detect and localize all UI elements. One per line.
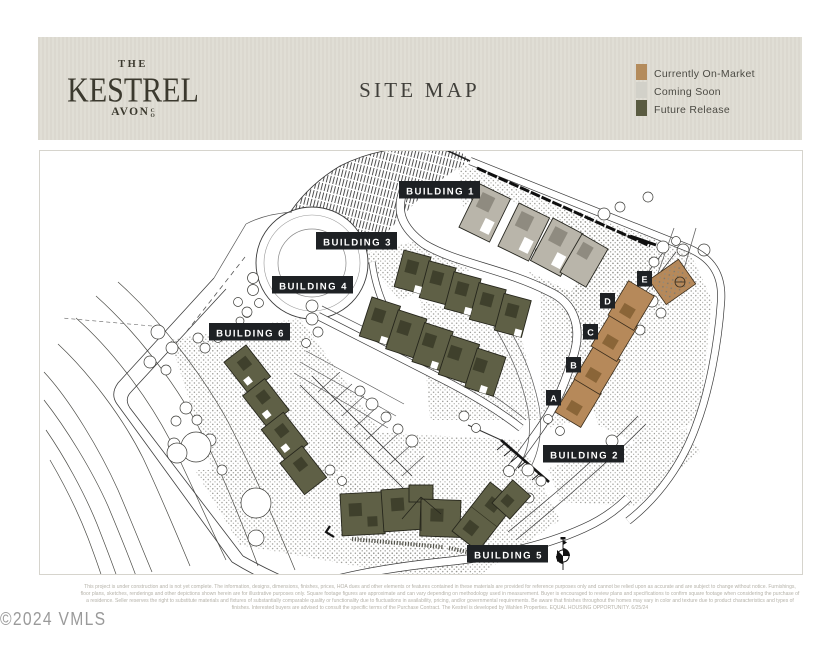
svg-text:A: A bbox=[550, 394, 557, 404]
svg-text:BUILDING 4: BUILDING 4 bbox=[279, 282, 348, 293]
svg-text:B: B bbox=[570, 361, 577, 371]
svg-text:BUILDING 3: BUILDING 3 bbox=[323, 238, 392, 249]
svg-text:C: C bbox=[587, 328, 594, 338]
svg-text:BUILDING 6: BUILDING 6 bbox=[216, 329, 285, 340]
svg-text:BUILDING 1: BUILDING 1 bbox=[406, 187, 475, 198]
svg-text:BUILDING 2: BUILDING 2 bbox=[550, 451, 619, 462]
svg-text:BUILDING 5: BUILDING 5 bbox=[474, 551, 543, 562]
svg-text:D: D bbox=[604, 297, 611, 307]
svg-text:E: E bbox=[641, 275, 647, 285]
